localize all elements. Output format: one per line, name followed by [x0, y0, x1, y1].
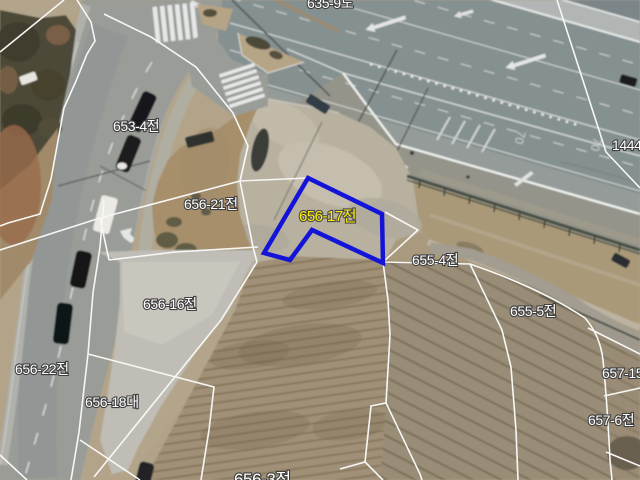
svg-text:1444: 1444	[612, 137, 640, 153]
svg-text:656-16전: 656-16전	[143, 296, 197, 312]
svg-text:656-17전: 656-17전	[299, 208, 356, 225]
svg-text:653-4전: 653-4전	[113, 118, 159, 134]
svg-text:656-18대: 656-18대	[85, 394, 139, 410]
svg-text:656-22전: 656-22전	[15, 361, 69, 377]
svg-text:656-21전: 656-21전	[184, 196, 238, 212]
svg-text:657-6전: 657-6전	[588, 412, 634, 428]
svg-text:655-4전: 655-4전	[412, 252, 458, 268]
svg-text:635-9도: 635-9도	[307, 0, 354, 11]
svg-text:657-15: 657-15	[602, 365, 640, 381]
svg-text:656-3전: 656-3전	[234, 470, 291, 480]
svg-text:655-5전: 655-5전	[510, 303, 556, 319]
